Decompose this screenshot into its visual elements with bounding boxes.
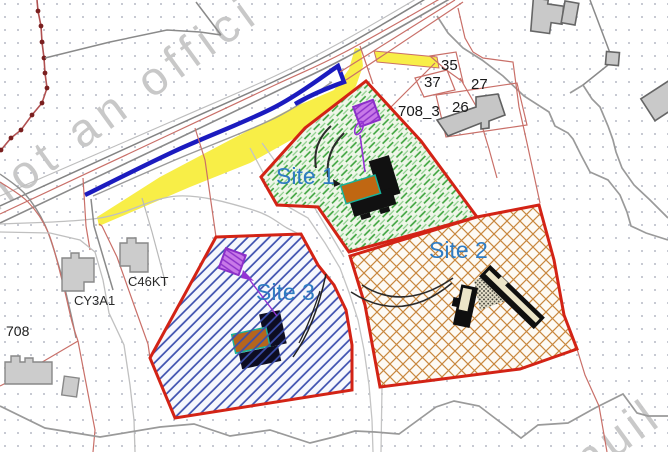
- svg-text:708_3: 708_3: [398, 103, 440, 120]
- svg-text:Site 2: Site 2: [429, 237, 488, 263]
- svg-text:Site 1: Site 1: [276, 163, 335, 189]
- svg-text:37: 37: [424, 74, 441, 91]
- svg-text:CY3A1: CY3A1: [74, 293, 115, 308]
- svg-text:C46KT: C46KT: [128, 274, 169, 289]
- svg-text:Site 3: Site 3: [256, 279, 315, 305]
- svg-text:26: 26: [452, 99, 469, 116]
- svg-text:35: 35: [441, 57, 458, 74]
- svg-text:708: 708: [6, 323, 30, 339]
- svg-text:27: 27: [471, 76, 488, 93]
